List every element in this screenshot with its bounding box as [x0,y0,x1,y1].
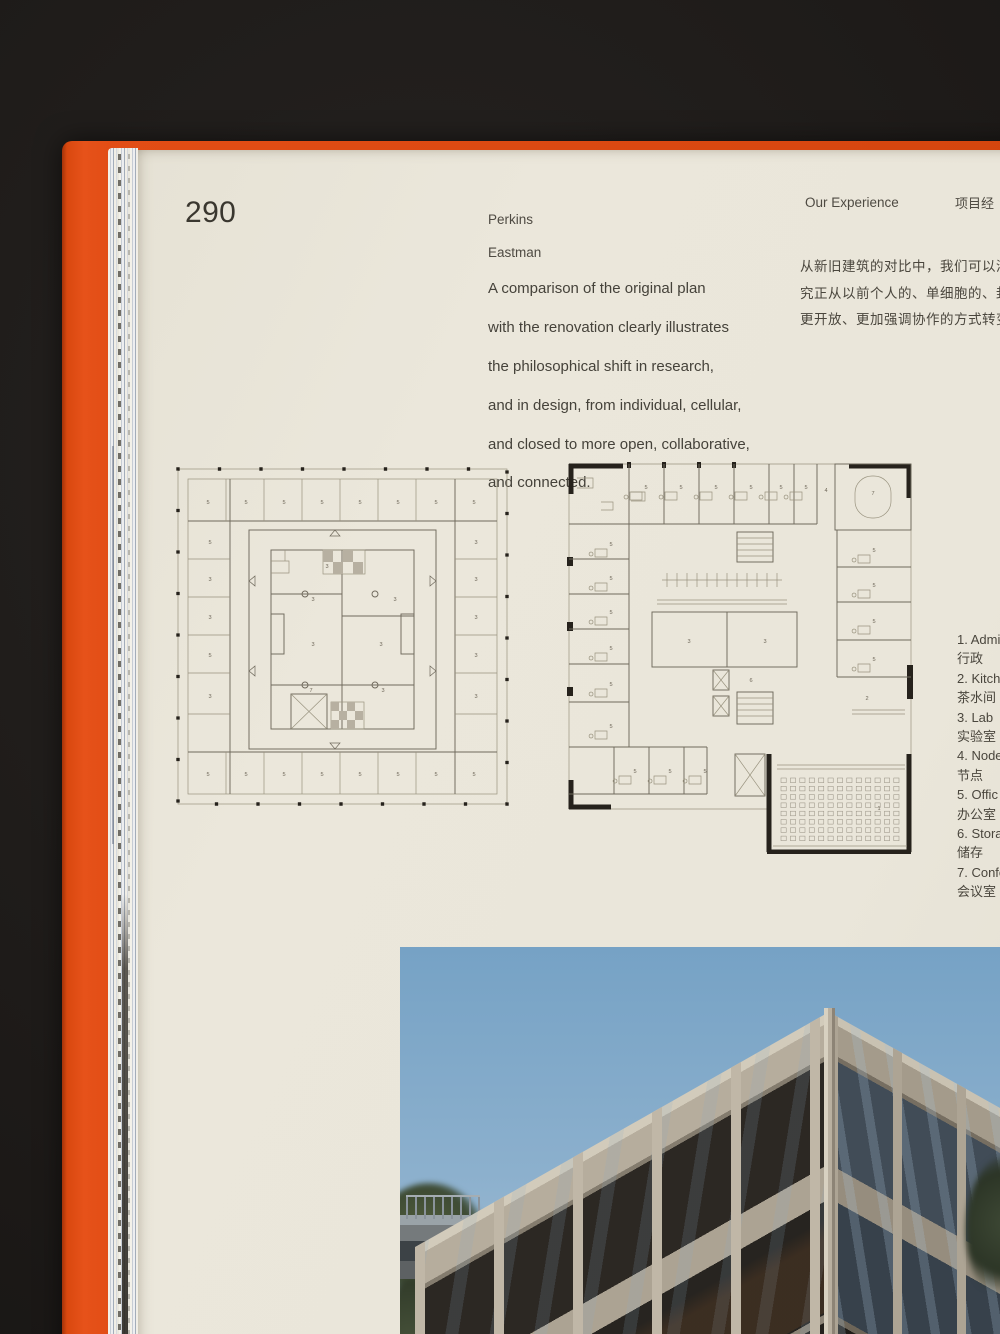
book-cover-edge: 290 Perkins Eastman Our Experience 项目经 A… [62,141,1000,1334]
page-number: 290 [185,196,236,230]
svg-text:3: 3 [208,694,211,700]
legend-item: 5. Offic [957,785,1000,804]
svg-text:5: 5 [244,772,247,778]
svg-text:3: 3 [474,540,477,546]
svg-text:3: 3 [687,639,690,645]
legend-item: 办公室 [957,805,1000,824]
svg-text:5: 5 [358,500,361,506]
original-floor-plan: 555555555555555553353333333333373 [175,466,510,807]
section-title-en: Our Experience [805,195,899,212]
legend-item: 会议室 [957,882,1000,901]
desks-top-lab [577,478,645,510]
kitchen-counter [852,710,905,714]
svg-text:5: 5 [206,772,209,778]
svg-text:4: 4 [824,488,827,494]
section-title-zh: 项目经 [955,196,994,212]
svg-text:5: 5 [749,485,752,491]
svg-text:5: 5 [872,583,875,589]
legend-item: 1. Admi [957,630,1000,649]
legend-item: 7. Confe [957,863,1000,882]
svg-text:5: 5 [714,485,717,491]
stair-checker-top [323,550,365,574]
svg-text:5: 5 [644,485,647,491]
svg-text:6: 6 [749,678,752,684]
svg-text:3: 3 [325,564,328,570]
svg-text:5: 5 [434,772,437,778]
legend-item: 6. Stora [957,824,1000,843]
svg-text:3: 3 [311,597,314,603]
building-facade-left [415,1012,829,1334]
stair-bottom [737,692,773,724]
svg-text:5: 5 [244,500,247,506]
page-stack-edge [108,148,138,1334]
svg-text:5: 5 [208,540,211,546]
svg-text:5: 5 [609,646,612,652]
elevator-shaft [291,694,327,729]
svg-text:5: 5 [679,485,682,491]
book-page: 290 Perkins Eastman Our Experience 项目经 A… [138,150,1000,1334]
svg-text:5: 5 [434,500,437,506]
intro-paragraph-zh: 从新旧建筑的对比中，我们可以清 究正从以前个人的、单细胞的、封闭 更开放、更加强… [800,254,1000,334]
legend-item: 储存 [957,843,1000,862]
legend-item: 2. Kitch [957,669,1000,688]
svg-text:5: 5 [396,772,399,778]
page-edge-print-marks [118,154,121,1334]
svg-text:3: 3 [379,642,382,648]
svg-text:2: 2 [865,696,868,702]
stair-checker-bottom [331,702,364,729]
building-facade-right [829,1012,1000,1334]
svg-text:3: 3 [474,615,477,621]
svg-text:5: 5 [872,657,875,663]
svg-text:5: 5 [703,769,706,775]
plan-legend: 1. Admi行政 2. Kitch茶水间 3. Lab实验室 4. Node节… [957,630,1000,901]
svg-text:7: 7 [871,491,874,497]
svg-text:5: 5 [208,653,211,659]
svg-text:5: 5 [609,576,612,582]
svg-text:5: 5 [609,682,612,688]
svg-text:5: 5 [320,772,323,778]
renovated-floor-plan: 55555547555555555523365551 [567,462,913,854]
svg-text:5: 5 [609,610,612,616]
svg-text:3: 3 [393,597,396,603]
svg-text:5: 5 [609,724,612,730]
svg-text:5: 5 [282,772,285,778]
svg-text:3: 3 [208,577,211,583]
svg-text:5: 5 [472,772,475,778]
svg-text:5: 5 [804,485,807,491]
elevators [713,670,729,716]
svg-text:5: 5 [396,500,399,506]
legend-item: 茶水间 [957,688,1000,707]
page-edge-dark-section [122,894,128,1334]
stair-top [737,532,773,562]
legend-item: 行政 [957,649,1000,668]
svg-text:5: 5 [609,542,612,548]
svg-text:5: 5 [206,500,209,506]
svg-text:3: 3 [763,639,766,645]
page-edge-print-marks [128,154,130,1334]
conference-room [835,464,911,530]
building-photo [400,947,1000,1334]
building-corner-pier [824,1008,835,1334]
svg-text:5: 5 [472,500,475,506]
photo-backdrop: 290 Perkins Eastman Our Experience 项目经 A… [0,0,1000,1334]
svg-text:5: 5 [668,769,671,775]
legend-item: 4. Node [957,746,1000,765]
auditorium [773,765,907,846]
legend-item: 实验室 [957,727,1000,746]
svg-text:5: 5 [358,772,361,778]
column-grid-dots [178,469,507,804]
renovated-plan-svg: 55555547555555555523365551 [567,462,913,854]
svg-text:5: 5 [282,500,285,506]
legend-item: 节点 [957,766,1000,785]
svg-text:3: 3 [474,694,477,700]
svg-text:5: 5 [320,500,323,506]
svg-text:3: 3 [474,653,477,659]
legend-item: 3. Lab [957,708,1000,727]
svg-text:5: 5 [779,485,782,491]
svg-text:3: 3 [381,688,384,694]
svg-text:3: 3 [208,615,211,621]
svg-text:5: 5 [872,548,875,554]
page-edge-tint [112,446,114,844]
svg-text:7: 7 [309,688,312,694]
svg-text:3: 3 [474,577,477,583]
service-shaft [735,754,765,796]
lab-benches [657,573,787,604]
svg-text:3: 3 [311,642,314,648]
auditorium-seats [781,778,899,841]
svg-text:5: 5 [872,619,875,625]
original-plan-svg: 555555555555555553353333333333373 [175,466,510,807]
svg-text:5: 5 [633,769,636,775]
